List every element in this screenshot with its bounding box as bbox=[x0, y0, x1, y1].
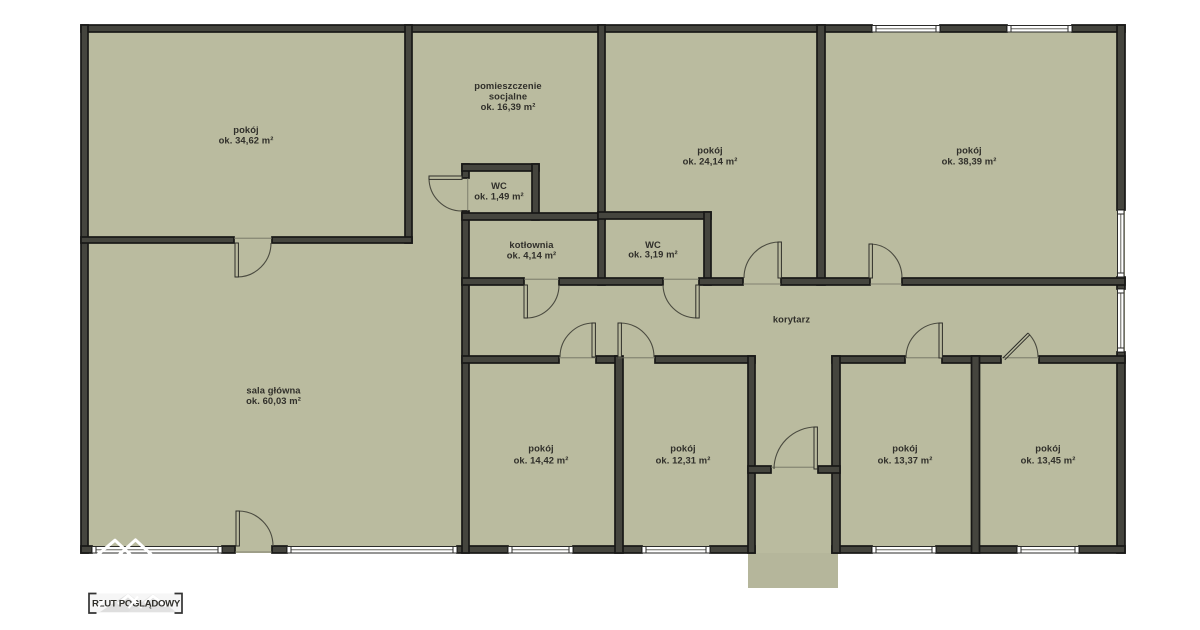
svg-text:pokój: pokój bbox=[892, 442, 918, 453]
svg-text:pokój: pokój bbox=[233, 124, 259, 135]
svg-text:ok. 34,62 m²: ok. 34,62 m² bbox=[219, 135, 274, 146]
svg-text:pokój: pokój bbox=[1035, 442, 1061, 453]
svg-text:kotłownia: kotłownia bbox=[509, 239, 554, 250]
svg-text:ok. 16,39 m²: ok. 16,39 m² bbox=[481, 101, 536, 112]
svg-text:pomieszczenie: pomieszczenie bbox=[474, 80, 541, 91]
svg-text:sala główna: sala główna bbox=[246, 384, 301, 395]
svg-text:socjalne: socjalne bbox=[489, 90, 527, 101]
svg-text:pokój: pokój bbox=[956, 144, 982, 155]
svg-text:ok. 13,37 m²: ok. 13,37 m² bbox=[878, 454, 933, 465]
svg-text:ok. 4,14 m²: ok. 4,14 m² bbox=[507, 249, 557, 260]
svg-text:pokój: pokój bbox=[528, 442, 554, 453]
svg-text:ok. 3,19 m²: ok. 3,19 m² bbox=[628, 249, 678, 260]
svg-text:ok. 14,42 m²: ok. 14,42 m² bbox=[514, 454, 569, 465]
svg-text:korytarz: korytarz bbox=[773, 313, 810, 324]
svg-text:ok. 12,31 m²: ok. 12,31 m² bbox=[656, 454, 711, 465]
svg-text:pokój: pokój bbox=[697, 144, 723, 155]
svg-text:ok. 38,39 m²: ok. 38,39 m² bbox=[942, 155, 997, 166]
svg-text:pokój: pokój bbox=[670, 442, 696, 453]
svg-text:ok. 1,49 m²: ok. 1,49 m² bbox=[474, 190, 524, 201]
svg-text:ok. 24,14 m²: ok. 24,14 m² bbox=[683, 155, 738, 166]
svg-text:ok. 13,45 m²: ok. 13,45 m² bbox=[1021, 454, 1076, 465]
svg-text:ok. 60,03 m²: ok. 60,03 m² bbox=[246, 395, 301, 406]
